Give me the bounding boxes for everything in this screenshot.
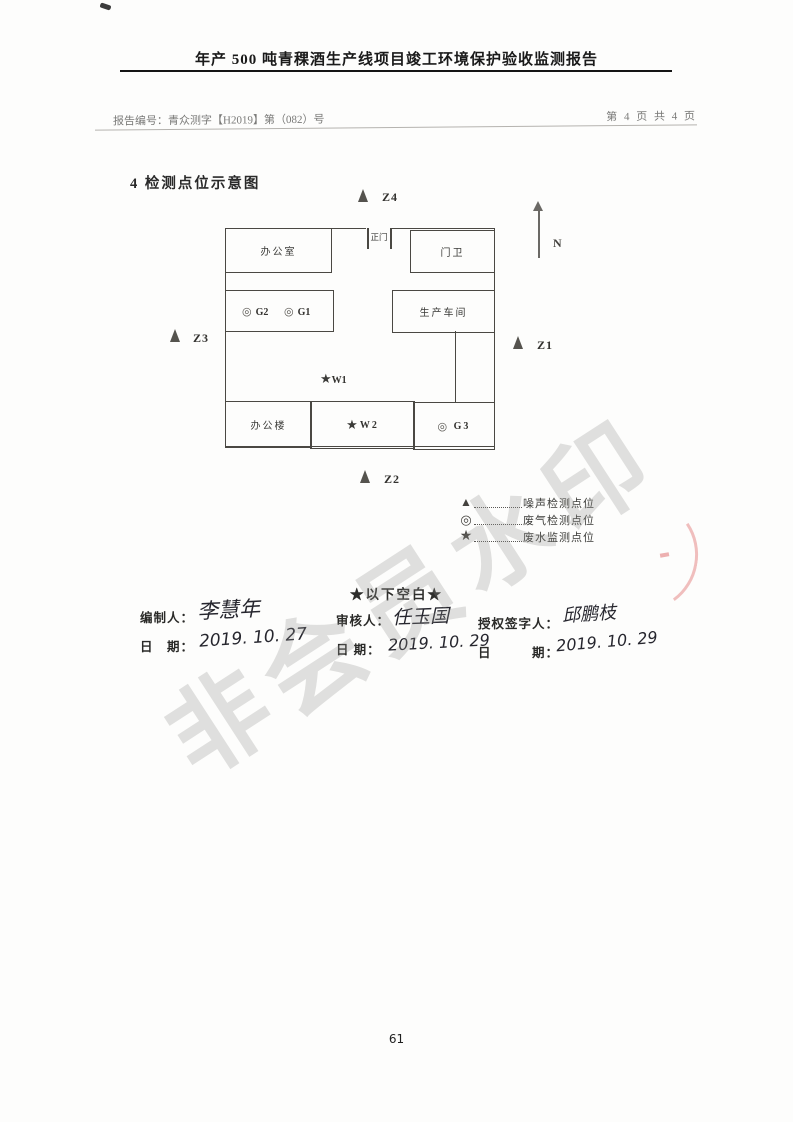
noise-point-z4-label: Z4 <box>382 190 398 205</box>
gas-point-g3-box: ◎ G3 <box>413 402 495 450</box>
gas-point-g1-label: G1 <box>298 307 311 318</box>
water-point-w1: ★W1 <box>320 370 347 388</box>
gas-point-g2-label: G2 <box>256 307 269 318</box>
noise-point-z1-label: Z1 <box>537 338 553 353</box>
office-room-box: 办公室 <box>225 228 332 273</box>
authorizer-signature: 邱鹏枝 <box>561 598 617 628</box>
page-indicator: 第 4 页 共 4 页 <box>606 107 697 124</box>
legend-item-water: ★ 废水监测点位 <box>458 528 595 545</box>
gas-marker-icon: ◎ <box>438 420 450 433</box>
preparer-date: 2019. 10. 27 <box>198 624 307 651</box>
noise-point-z3-label: Z3 <box>193 331 209 346</box>
authorizer-label: 授权签字人： <box>478 613 559 632</box>
guard-room-label: 门卫 <box>411 231 494 272</box>
preparer-date-label: 日 期： <box>140 636 194 655</box>
gas-point-g3: ◎ G3 <box>414 403 494 449</box>
reviewer-date-label: 日 期： <box>336 639 381 658</box>
workshop-label: 生产车间 <box>393 291 494 332</box>
section-title: 4 检测点位示意图 <box>130 172 260 193</box>
water-point-w2-label: W2 <box>360 420 379 431</box>
scan-artifact-mark <box>99 2 111 10</box>
office-room-label: 办公室 <box>226 229 331 272</box>
water-point-w1-label: W1 <box>332 375 347 386</box>
legend-leader <box>474 515 522 525</box>
north-arrow-head-icon <box>533 201 543 211</box>
legend-leader <box>474 532 522 542</box>
gas-point-g3-label: G3 <box>454 421 471 432</box>
gas-point-g1: ◎ G1 <box>284 302 310 320</box>
water-point-w2: ★W2 <box>311 402 414 448</box>
legend-label-noise: 噪声检测点位 <box>523 495 595 511</box>
office-building-box: 办公楼 <box>225 401 312 448</box>
reviewer-date: 2019. 10. 29 <box>388 630 491 654</box>
legend: ▲ 噪声检测点位 ◎ 废气检测点位 ★ 废水监测点位 <box>458 494 595 545</box>
gate-opening <box>366 226 392 230</box>
main-gate-label: 正门 <box>366 231 392 243</box>
noise-point-z2-label: Z2 <box>384 472 400 487</box>
legend-label-gas: 废气检测点位 <box>523 512 595 528</box>
north-arrow-line <box>538 210 540 258</box>
gas-point-g2: ◎ G2 <box>242 302 268 320</box>
reviewer-label: 审核人： <box>336 610 390 629</box>
authorizer-date-label: 日 期： <box>478 642 559 661</box>
legend-leader <box>474 498 522 508</box>
noise-marker-z1-icon <box>513 336 523 349</box>
noise-marker-z2-icon <box>360 470 370 483</box>
gas-points-box: ◎ G2 ◎ G1 <box>225 290 334 332</box>
north-label: N <box>553 236 562 251</box>
water-marker-icon: ★ <box>346 417 360 433</box>
page-number: 61 <box>0 1032 793 1046</box>
reviewer-signature: 任玉国 <box>392 601 450 630</box>
water-point-w2-box: ★W2 <box>310 401 415 449</box>
gas-marker-icon: ◎ <box>458 512 474 528</box>
water-marker-icon: ★ <box>320 371 332 386</box>
title-underline <box>120 70 672 72</box>
legend-item-noise: ▲ 噪声检测点位 <box>458 494 595 511</box>
water-marker-icon: ★ <box>458 528 474 545</box>
gas-marker-icon: ◎ <box>284 306 294 318</box>
legend-item-gas: ◎ 废气检测点位 <box>458 511 595 528</box>
noise-marker-icon: ▲ <box>458 495 474 510</box>
document-title: 年产 500 吨青稞酒生产线项目竣工环境保护验收监测报告 <box>0 48 793 69</box>
preparer-signature: 李慧年 <box>196 592 260 625</box>
guard-room-box: 门卫 <box>410 230 495 273</box>
office-building-label: 办公楼 <box>226 402 311 447</box>
preparer-label: 编制人： <box>140 607 194 626</box>
authorizer-date: 2019. 10. 29 <box>555 628 658 656</box>
workshop-arm-wall <box>455 331 456 403</box>
report-number: 报告编号：青众测字【H2019】第（082）号 <box>113 114 325 128</box>
noise-marker-z4-icon <box>358 189 368 202</box>
workshop-box: 生产车间 <box>392 290 495 333</box>
gas-marker-icon: ◎ <box>242 306 252 318</box>
scanned-report-page: 年产 500 吨青稞酒生产线项目竣工环境保护验收监测报告 报告编号：青众测字【H… <box>0 0 793 1122</box>
noise-marker-z3-icon <box>170 329 180 342</box>
legend-label-water: 废水监测点位 <box>523 529 595 545</box>
